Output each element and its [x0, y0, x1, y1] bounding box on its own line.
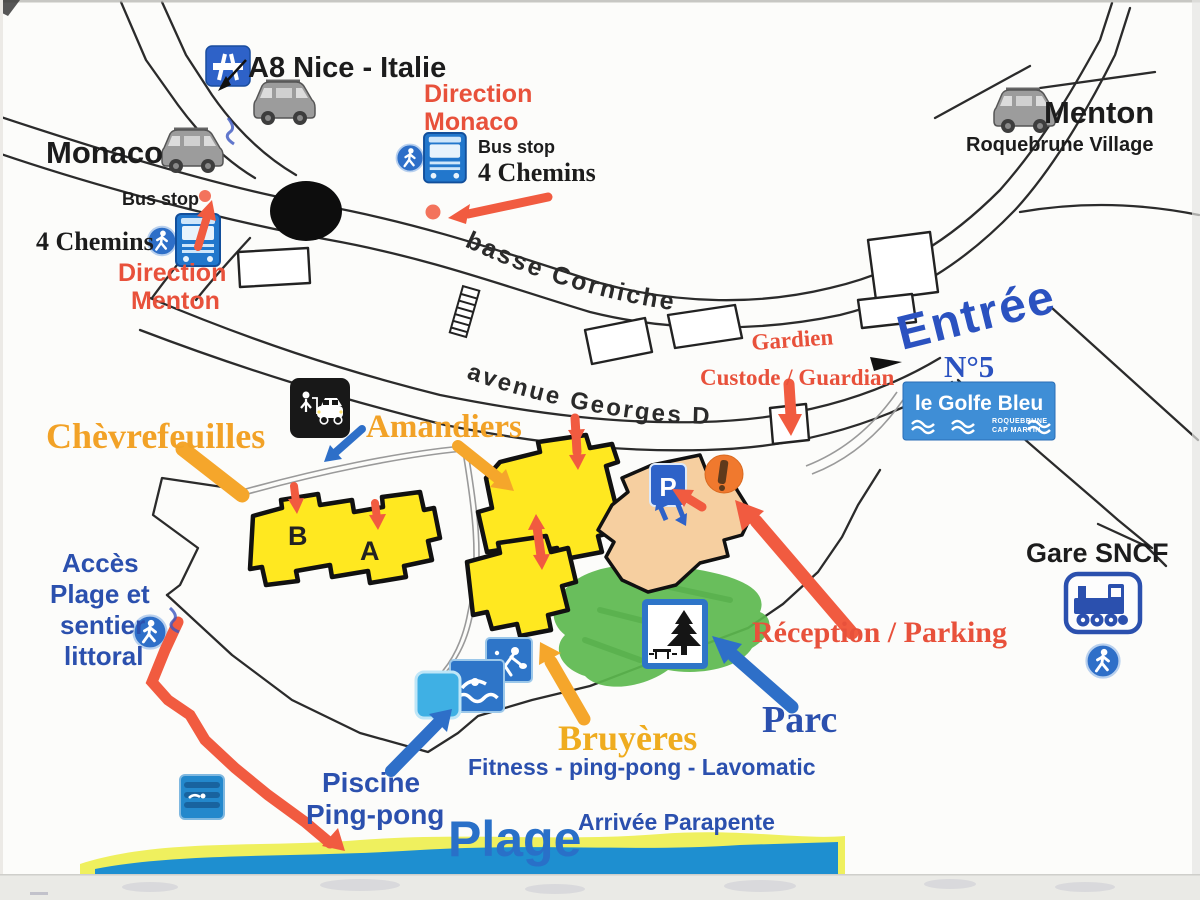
bruyeres-label: Bruyères: [558, 718, 697, 758]
acces-plage-line2: Plage et: [50, 579, 150, 609]
roquebrune-village-label: Roquebrune Village: [966, 134, 1153, 156]
beach-swimmer-icon: [180, 775, 224, 819]
bus-stop-icon-right: [424, 133, 466, 182]
custode-guardian-label: Custode / Guardian: [700, 365, 894, 390]
gardien-label: Gardien: [751, 324, 835, 355]
fitness-label: Fitness - ping-pong - Lavomatic: [468, 754, 816, 780]
pool-square-icon: [416, 672, 460, 718]
parc-label: Parc: [762, 699, 837, 741]
pedestrian-car-sign: [290, 378, 350, 438]
block-a-label: A: [360, 536, 380, 566]
basse-corniche-textpath: basse Corniche: [462, 226, 679, 316]
golfe-bleu-sign-name: le Golfe Bleu: [915, 392, 1043, 415]
scanned-access-map: P: [0, 0, 1200, 900]
piscine-label-line2: Ping-pong: [306, 799, 444, 830]
monaco-label: Monaco: [46, 135, 163, 170]
park-picnic-icon: [645, 602, 705, 666]
amandiers-label: Amandiers: [366, 409, 522, 445]
info-circle-icon: [705, 455, 743, 493]
reception-parking-label: Réception / Parking: [752, 616, 1007, 649]
parapente-label: Arrivée Parapente: [578, 809, 775, 835]
map-canvas: P: [0, 0, 1200, 900]
car-icon-a8: [254, 81, 315, 125]
parking-letter: P: [659, 472, 676, 502]
a8-label: A8 Nice - Italie: [248, 52, 446, 84]
acces-plage-line1: Accès: [62, 548, 139, 578]
plage-label: Plage: [448, 811, 581, 867]
acces-plage-line4: littoral: [64, 641, 143, 671]
roundabout: [270, 181, 342, 241]
piscine-label-line1: Piscine: [322, 767, 420, 798]
direction-menton-line2: Menton: [131, 287, 220, 315]
four-chemins-left-label: 4 Chemins: [36, 227, 154, 256]
train-station-icon: [1066, 574, 1140, 632]
building-chevrefeuilles: [250, 492, 440, 585]
basse-corniche-label: basse Corniche: [462, 226, 679, 316]
entree-number-label: N°5: [944, 349, 994, 384]
acces-plage-line3: sentier: [60, 610, 145, 640]
golfe-bleu-sign-sub2: CAP MARTIN: [992, 427, 1041, 434]
car-icon-monaco: [162, 129, 223, 173]
bus-stop-left-label: Bus stop: [122, 189, 199, 209]
stairs-symbol: [450, 286, 480, 337]
golfe-bleu-sign-sub1: ROQUEBRUNE: [992, 418, 1048, 425]
pedestrian-icon-gare: [1087, 645, 1120, 678]
direction-menton-line1: Direction: [118, 259, 226, 287]
chevrefeuilles-label: Chèvrefeuilles: [46, 416, 265, 456]
direction-monaco-line2: Monaco: [424, 108, 518, 136]
golfe-bleu-sign: le Golfe Bleu ROQUEBRUNE CAP MARTIN: [903, 382, 1055, 440]
bus-stop-right-label: Bus stop: [478, 137, 555, 157]
four-chemins-right-label: 4 Chemins: [478, 158, 596, 187]
direction-monaco-line1: Direction: [424, 80, 532, 108]
menton-label: Menton: [1044, 95, 1154, 130]
block-b-label: B: [288, 521, 308, 551]
gare-sncf-label: Gare SNCF: [1026, 538, 1169, 568]
pedestrian-icon-bus-right: [397, 145, 424, 172]
